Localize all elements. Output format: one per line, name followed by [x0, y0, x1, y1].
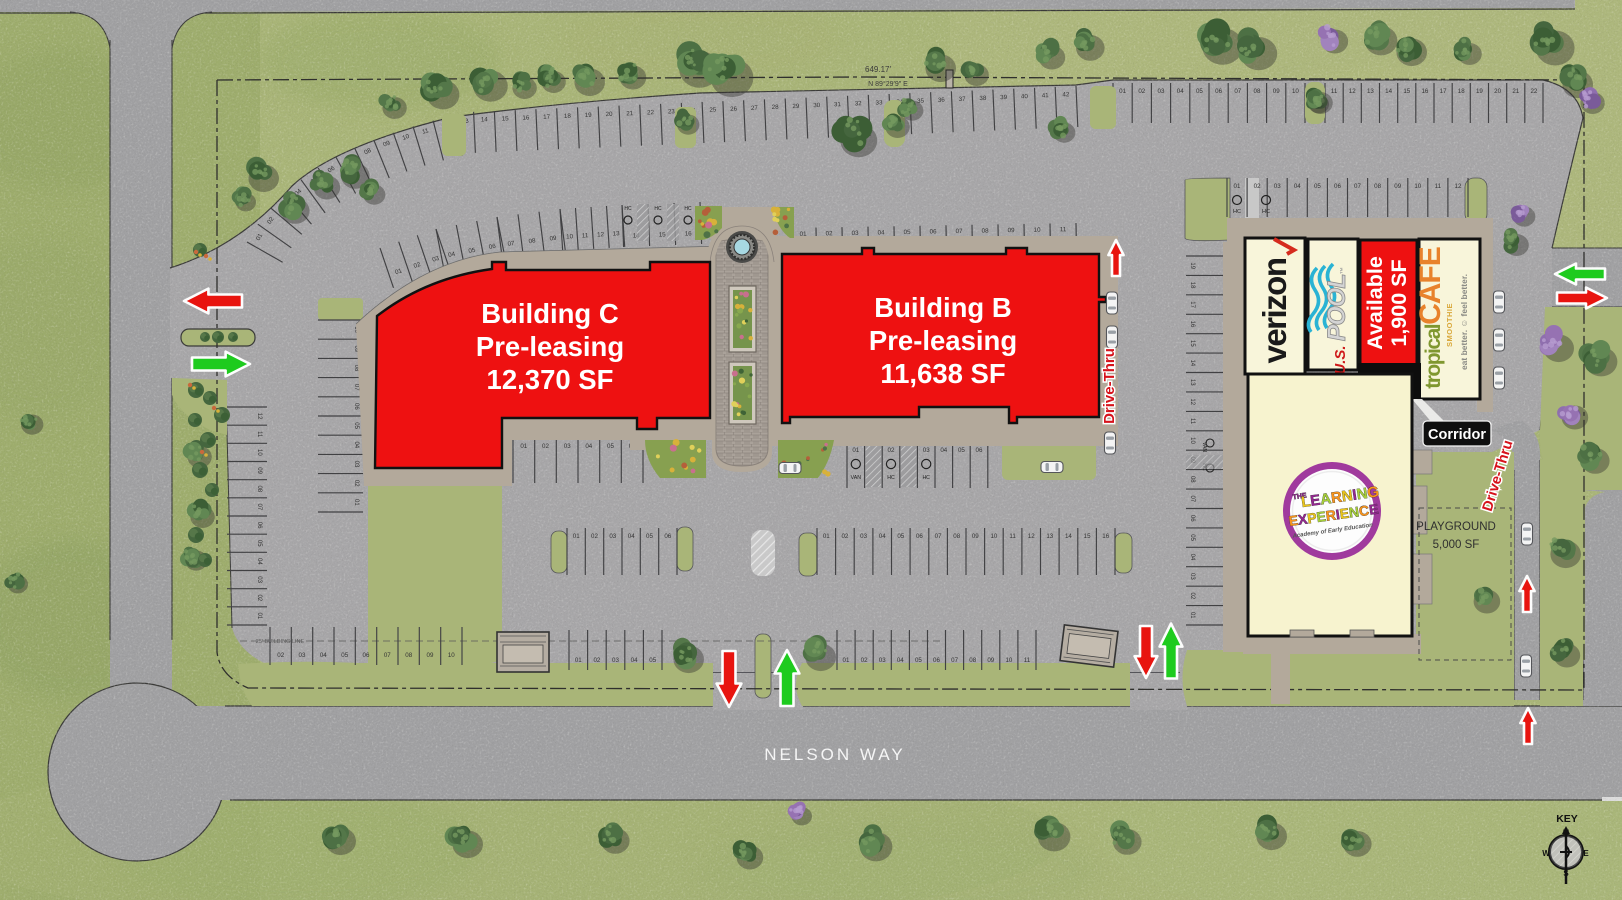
svg-text:10: 10 — [566, 233, 574, 240]
svg-text:03: 03 — [299, 652, 306, 659]
svg-text:06: 06 — [1189, 515, 1195, 522]
svg-text:Pre-leasing: Pre-leasing — [476, 331, 624, 362]
svg-text:05: 05 — [1189, 534, 1195, 541]
svg-text:06: 06 — [256, 522, 262, 529]
svg-text:20: 20 — [605, 111, 613, 118]
svg-text:20: 20 — [1494, 88, 1501, 95]
svg-text:06: 06 — [1215, 88, 1222, 95]
svg-text:09: 09 — [1394, 183, 1401, 190]
svg-text:06: 06 — [916, 533, 923, 540]
svg-text:07: 07 — [935, 533, 942, 540]
svg-text:08: 08 — [1254, 88, 1261, 95]
svg-text:07: 07 — [353, 384, 359, 391]
svg-text:09: 09 — [972, 533, 979, 540]
svg-text:05: 05 — [904, 229, 912, 236]
svg-text:16: 16 — [685, 230, 693, 237]
svg-text:08: 08 — [1374, 183, 1381, 190]
svg-text:07: 07 — [951, 657, 958, 664]
svg-text:06: 06 — [930, 228, 938, 235]
svg-text:12: 12 — [1028, 533, 1035, 540]
svg-text:12: 12 — [256, 413, 262, 420]
svg-text:29: 29 — [792, 103, 800, 110]
svg-text:08: 08 — [969, 657, 976, 664]
svg-text:11: 11 — [1435, 183, 1442, 190]
svg-text:04: 04 — [628, 533, 635, 540]
svg-text:16: 16 — [1189, 321, 1195, 328]
svg-text:12: 12 — [597, 231, 605, 238]
svg-text:02: 02 — [841, 533, 848, 540]
svg-text:07: 07 — [956, 228, 964, 235]
svg-text:16: 16 — [1421, 88, 1428, 95]
svg-text:16: 16 — [522, 114, 530, 121]
svg-text:VAN: VAN — [851, 475, 862, 481]
svg-text:02: 02 — [861, 657, 868, 664]
svg-text:SMOOTHIE: SMOOTHIE — [1445, 303, 1454, 347]
svg-text:11: 11 — [1331, 88, 1338, 95]
svg-text:S: S — [1563, 869, 1569, 878]
svg-text:15: 15 — [659, 231, 667, 238]
svg-text:01: 01 — [520, 443, 527, 450]
svg-text:25: 25 — [709, 106, 717, 113]
svg-text:03: 03 — [923, 447, 930, 454]
svg-text:08: 08 — [405, 652, 412, 659]
svg-text:25′ BUILDING LINE: 25′ BUILDING LINE — [256, 639, 305, 645]
svg-text:649.17′: 649.17′ — [865, 65, 891, 74]
svg-text:15: 15 — [1189, 340, 1195, 347]
svg-text:01: 01 — [1234, 183, 1241, 190]
svg-text:09: 09 — [1008, 227, 1016, 234]
svg-text:03: 03 — [612, 657, 619, 664]
svg-text:22: 22 — [647, 109, 655, 116]
svg-text:42: 42 — [1062, 91, 1070, 98]
svg-text:11: 11 — [256, 431, 262, 438]
svg-text:Corridor: Corridor — [1428, 427, 1486, 443]
svg-text:04: 04 — [353, 441, 359, 448]
svg-text:10: 10 — [1034, 227, 1042, 234]
svg-text:09: 09 — [987, 657, 994, 664]
svg-text:01: 01 — [575, 657, 582, 664]
svg-text:30: 30 — [813, 102, 821, 109]
svg-text:10: 10 — [990, 533, 997, 540]
svg-text:05: 05 — [353, 422, 359, 429]
svg-text:04: 04 — [256, 558, 262, 565]
svg-text:17: 17 — [1440, 88, 1447, 95]
svg-text:03: 03 — [1189, 573, 1195, 580]
svg-text:03: 03 — [353, 461, 359, 468]
svg-text:04: 04 — [879, 533, 886, 540]
svg-text:17: 17 — [543, 114, 551, 121]
svg-text:19: 19 — [1189, 262, 1195, 269]
svg-text:04: 04 — [631, 657, 638, 664]
svg-text:02: 02 — [591, 533, 598, 540]
svg-text:32: 32 — [855, 100, 863, 107]
svg-text:03: 03 — [879, 657, 886, 664]
svg-text:04: 04 — [1189, 554, 1195, 561]
svg-text:HC: HC — [1262, 209, 1270, 215]
svg-text:05: 05 — [958, 447, 965, 454]
svg-text:09: 09 — [256, 467, 262, 474]
svg-text:05: 05 — [1314, 183, 1321, 190]
svg-text:05: 05 — [256, 540, 262, 547]
svg-text:14: 14 — [481, 116, 489, 123]
svg-text:28: 28 — [772, 104, 780, 111]
svg-text:N 89°29′9″ E: N 89°29′9″ E — [868, 80, 908, 88]
svg-text:02: 02 — [1189, 593, 1195, 600]
svg-text:23: 23 — [668, 108, 676, 115]
svg-text:13: 13 — [1046, 533, 1053, 540]
svg-text:Available: Available — [1363, 256, 1387, 350]
svg-text:W: W — [1542, 849, 1550, 858]
svg-text:02: 02 — [277, 652, 284, 659]
svg-text:02: 02 — [593, 657, 600, 664]
svg-text:14: 14 — [1065, 533, 1072, 540]
svg-text:02: 02 — [888, 447, 895, 454]
svg-text:05: 05 — [646, 533, 653, 540]
svg-text:11,638 SF: 11,638 SF — [880, 358, 1005, 389]
svg-text:27: 27 — [751, 105, 759, 112]
svg-text:11: 11 — [1024, 657, 1031, 664]
svg-text:eat better. ☺ feel better.: eat better. ☺ feel better. — [1459, 274, 1469, 370]
svg-text:09: 09 — [427, 652, 434, 659]
svg-text:E: E — [1583, 849, 1589, 858]
svg-text:1,900 SF: 1,900 SF — [1387, 259, 1411, 346]
svg-text:03: 03 — [852, 230, 860, 237]
svg-text:36: 36 — [938, 97, 946, 104]
svg-text:17: 17 — [1189, 301, 1195, 308]
svg-text:15: 15 — [1084, 533, 1091, 540]
svg-text:13: 13 — [1367, 88, 1374, 95]
svg-text:03: 03 — [609, 533, 616, 540]
svg-text:21: 21 — [626, 110, 634, 117]
svg-text:Building C: Building C — [481, 298, 619, 329]
svg-text:13: 13 — [612, 230, 620, 237]
svg-text:04: 04 — [897, 657, 904, 664]
svg-text:13: 13 — [1189, 379, 1195, 386]
svg-text:04: 04 — [1294, 183, 1301, 190]
svg-text:19: 19 — [1476, 88, 1483, 95]
svg-text:12: 12 — [1189, 398, 1195, 405]
svg-text:02: 02 — [1138, 88, 1145, 95]
svg-text:10: 10 — [1005, 657, 1012, 664]
svg-text:11: 11 — [1189, 418, 1195, 425]
svg-text:01: 01 — [256, 613, 262, 620]
svg-text:04: 04 — [320, 652, 327, 659]
svg-text:03: 03 — [860, 533, 867, 540]
svg-text:03: 03 — [564, 443, 571, 450]
svg-text:05: 05 — [607, 443, 614, 450]
svg-text:15: 15 — [1403, 88, 1410, 95]
svg-text:08: 08 — [982, 228, 990, 235]
svg-text:11: 11 — [1060, 226, 1067, 233]
svg-text:12,370 SF: 12,370 SF — [487, 364, 614, 395]
svg-text:HC: HC — [654, 206, 662, 212]
svg-text:05: 05 — [1196, 88, 1203, 95]
svg-text:06: 06 — [363, 652, 370, 659]
svg-text:01: 01 — [843, 657, 850, 664]
svg-text:02: 02 — [353, 480, 359, 487]
svg-text:01: 01 — [573, 533, 580, 540]
svg-text:10: 10 — [448, 652, 455, 659]
svg-text:HC: HC — [1233, 209, 1241, 215]
svg-text:10: 10 — [256, 449, 262, 456]
svg-text:HC: HC — [887, 475, 895, 481]
svg-text:11: 11 — [1009, 533, 1016, 540]
svg-text:40: 40 — [1021, 93, 1029, 100]
svg-text:07: 07 — [1354, 183, 1361, 190]
svg-text:12: 12 — [1455, 183, 1462, 190]
svg-text:11: 11 — [582, 232, 589, 239]
svg-text:05: 05 — [341, 652, 348, 659]
svg-text:18: 18 — [1458, 88, 1465, 95]
svg-text:04: 04 — [1177, 88, 1184, 95]
svg-text:31: 31 — [834, 101, 842, 108]
svg-text:02: 02 — [542, 443, 549, 450]
svg-text:01: 01 — [1189, 612, 1195, 619]
svg-text:05: 05 — [915, 657, 922, 664]
svg-text:03: 03 — [256, 576, 262, 583]
svg-text:01: 01 — [1119, 88, 1126, 95]
svg-text:07: 07 — [1234, 88, 1241, 95]
svg-text:19: 19 — [585, 112, 593, 119]
svg-text:15: 15 — [502, 115, 510, 122]
svg-text:5,000 SF: 5,000 SF — [1433, 539, 1480, 551]
svg-text:04: 04 — [878, 229, 886, 236]
svg-text:41: 41 — [1042, 92, 1050, 99]
svg-text:01: 01 — [353, 499, 359, 506]
svg-text:06: 06 — [933, 657, 940, 664]
svg-text:HC: HC — [922, 475, 930, 481]
svg-text:verizon: verizon — [1256, 258, 1293, 363]
svg-text:09: 09 — [1273, 88, 1280, 95]
svg-text:33: 33 — [875, 99, 883, 106]
svg-text:21: 21 — [1512, 88, 1519, 95]
svg-text:06: 06 — [353, 403, 359, 410]
svg-text:06: 06 — [976, 447, 983, 454]
svg-text:01: 01 — [852, 447, 859, 454]
svg-text:KEY: KEY — [1556, 813, 1578, 825]
svg-text:Building B: Building B — [874, 292, 1011, 323]
svg-text:HC: HC — [624, 206, 632, 212]
svg-text:04: 04 — [585, 443, 592, 450]
svg-text:05: 05 — [649, 657, 656, 664]
svg-text:07: 07 — [384, 652, 391, 659]
svg-text:HC: HC — [684, 206, 692, 212]
svg-text:12: 12 — [1349, 88, 1356, 95]
svg-text:03: 03 — [1158, 88, 1165, 95]
svg-text:10: 10 — [1414, 183, 1421, 190]
svg-text:06: 06 — [664, 533, 671, 540]
svg-text:05: 05 — [897, 533, 904, 540]
svg-text:08: 08 — [1189, 476, 1195, 483]
svg-text:10: 10 — [1292, 88, 1299, 95]
svg-text:04: 04 — [940, 447, 947, 454]
svg-text:06: 06 — [1334, 183, 1341, 190]
svg-text:18: 18 — [1189, 282, 1195, 289]
svg-text:26: 26 — [730, 106, 738, 113]
svg-text:14: 14 — [1189, 359, 1195, 366]
svg-text:Pre-leasing: Pre-leasing — [869, 325, 1017, 356]
svg-text:37: 37 — [959, 96, 967, 103]
svg-text:18: 18 — [564, 113, 572, 120]
svg-text:PLAYGROUND: PLAYGROUND — [1416, 521, 1496, 533]
svg-text:07: 07 — [1189, 495, 1195, 502]
svg-text:08: 08 — [256, 485, 262, 492]
svg-text:02: 02 — [1254, 183, 1261, 190]
svg-text:07: 07 — [256, 504, 262, 511]
svg-text:Drive-Thru: Drive-Thru — [1101, 348, 1118, 424]
svg-text:39: 39 — [1000, 94, 1008, 101]
svg-text:02: 02 — [256, 594, 262, 601]
svg-text:10: 10 — [1189, 437, 1195, 444]
svg-text:08: 08 — [953, 533, 960, 540]
svg-text:14: 14 — [1385, 88, 1392, 95]
svg-text:16: 16 — [1102, 533, 1109, 540]
svg-text:01: 01 — [823, 533, 830, 540]
svg-text:03: 03 — [1274, 183, 1281, 190]
svg-text:38: 38 — [979, 95, 987, 102]
svg-text:NELSON WAY: NELSON WAY — [764, 745, 905, 764]
svg-text:22: 22 — [1530, 88, 1537, 95]
